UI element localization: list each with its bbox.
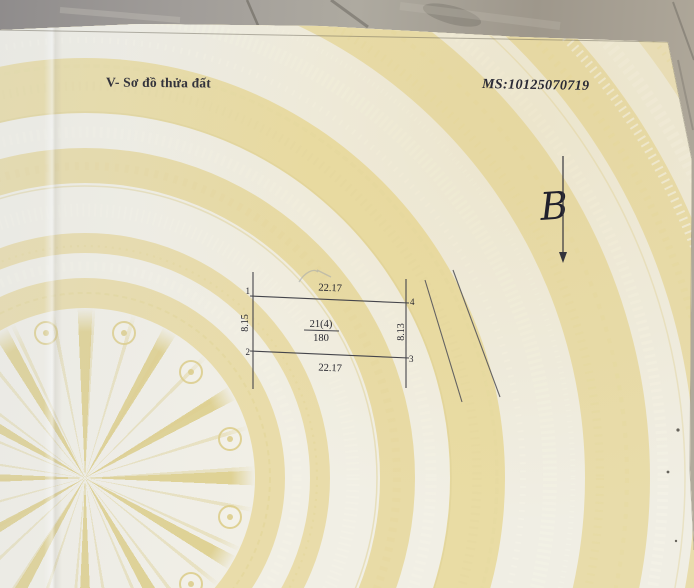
plot-diagram: 22.17 22.17 8.15 8.13 21(4) 180 1 2 4 3	[0, 0, 694, 588]
corner-2: 2	[246, 347, 251, 357]
parcel-number: 21(4)	[310, 319, 333, 330]
pencil-scribble	[299, 270, 331, 282]
ink-specks	[667, 428, 680, 542]
top-edge	[250, 296, 409, 303]
corner-4: 4	[410, 297, 415, 307]
paper-edge-shadow	[0, 30, 694, 550]
photo-scene: V- Sơ đồ thửa đất MS:10125070719 B	[0, 0, 694, 588]
document-paper: V- Sơ đồ thửa đất MS:10125070719 B	[0, 0, 694, 588]
parcel-area: 180	[313, 333, 329, 344]
road-boundary-lines	[425, 270, 500, 402]
dimension-bottom: 22.17	[318, 362, 342, 374]
corner-3: 3	[409, 354, 414, 364]
bottom-edge	[250, 351, 409, 358]
north-arrow-icon	[559, 156, 567, 263]
dimension-left: 8.15	[240, 314, 251, 332]
fraction-bar	[304, 330, 339, 331]
corner-1: 1	[246, 286, 251, 296]
dimension-top: 22.17	[318, 282, 342, 294]
dimension-right: 8.13	[396, 323, 407, 341]
